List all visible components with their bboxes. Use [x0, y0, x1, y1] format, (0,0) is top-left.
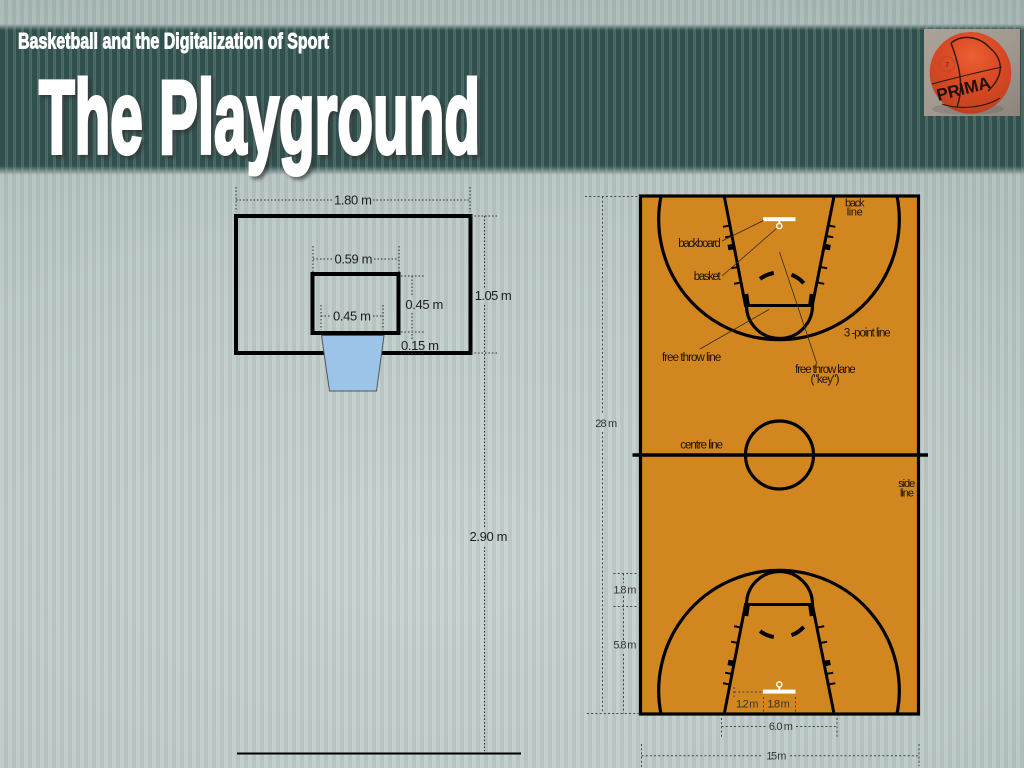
svg-text:("key"): ("key") — [811, 374, 840, 386]
svg-text:backboard: backboard — [678, 238, 721, 250]
svg-text:5.8 m: 5.8 m — [613, 640, 636, 652]
svg-text:line: line — [847, 206, 863, 218]
svg-text:0.45 m: 0.45 m — [333, 309, 371, 324]
svg-text:15 m: 15 m — [766, 750, 786, 762]
svg-text:1.8 m: 1.8 m — [767, 698, 790, 710]
svg-text:6.0 m: 6.0 m — [769, 721, 793, 733]
svg-text:1.2 m: 1.2 m — [736, 698, 759, 710]
svg-text:centre line: centre line — [680, 439, 723, 451]
svg-text:line: line — [900, 487, 914, 499]
svg-text:basket: basket — [694, 271, 722, 283]
svg-text:0.45 m: 0.45 m — [405, 297, 443, 312]
svg-text:28 m: 28 m — [595, 418, 617, 430]
svg-text:1.8 m: 1.8 m — [613, 584, 636, 596]
svg-text:1.80 m: 1.80 m — [334, 193, 372, 208]
svg-text:3 -point line: 3 -point line — [844, 328, 891, 340]
svg-text:0.15 m: 0.15 m — [401, 338, 439, 353]
svg-text:free throw line: free throw line — [662, 352, 721, 364]
svg-text:1.05 m: 1.05 m — [475, 288, 512, 303]
svg-text:0.59 m: 0.59 m — [335, 252, 373, 267]
svg-text:2.90 m: 2.90 m — [470, 529, 508, 544]
